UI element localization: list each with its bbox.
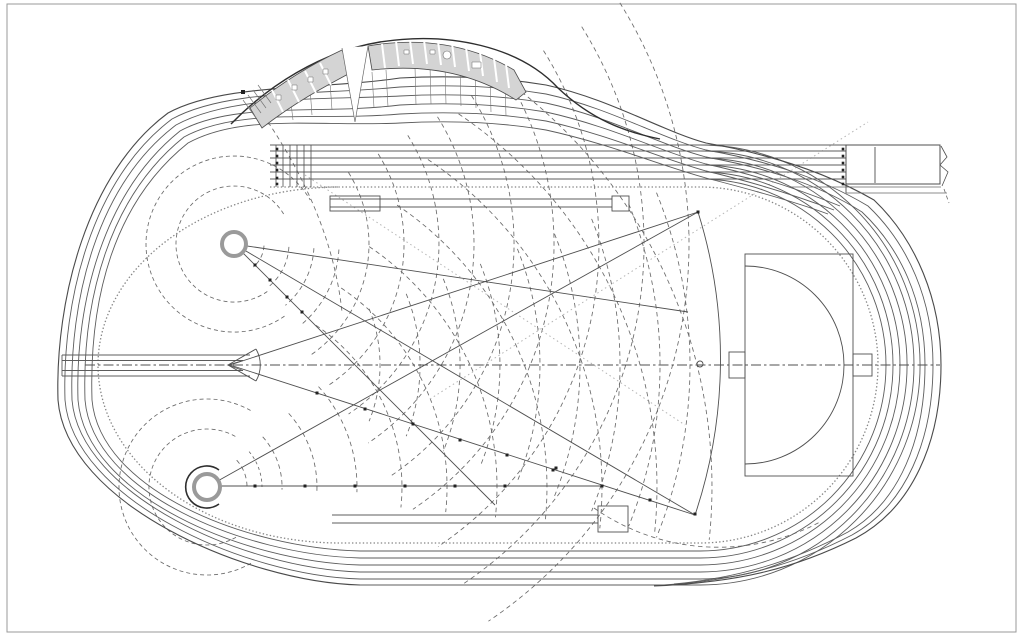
upper-throwing-circle [222,232,246,256]
javelin-runway [62,355,250,376]
upper-sector-edge-a [234,244,688,312]
south-jump-pit [598,506,628,532]
javelin-sector-arc [695,212,720,515]
site-plan-svg [0,0,1024,639]
sweep-lane-6-outer-boundary [58,77,941,586]
curve-centre-marker [697,361,703,367]
lower-circle-far-arc-fan [316,68,712,540]
finish-lines [846,145,875,193]
drawing-sheet [0,0,1024,639]
canopy-node-marker [241,90,245,94]
lower-circle-near-arc-fan [237,387,357,493]
finish-markers [842,148,845,186]
drawing-break-dash [944,189,949,203]
javelin-sector-edge-south [230,365,695,515]
dotted-sightline-se [305,175,685,425]
upper-circle-far-arc-fan [310,3,690,621]
drawing-break-line [940,146,948,186]
dotted-sightline-ne [430,122,868,399]
lower-sector-long-edge [207,212,698,487]
east-event-area [745,254,853,476]
lower-throwing-circle [194,474,220,500]
south-jump-runway [332,515,598,523]
east-wing-round-table [443,51,451,59]
north-jump-board [612,196,629,211]
north-jump-runway [330,199,612,207]
javelin-edge-markers [316,211,700,516]
finish-runout-box [846,145,940,184]
sweep-lane-3 [78,104,840,565]
north-jump-pit [330,196,380,211]
